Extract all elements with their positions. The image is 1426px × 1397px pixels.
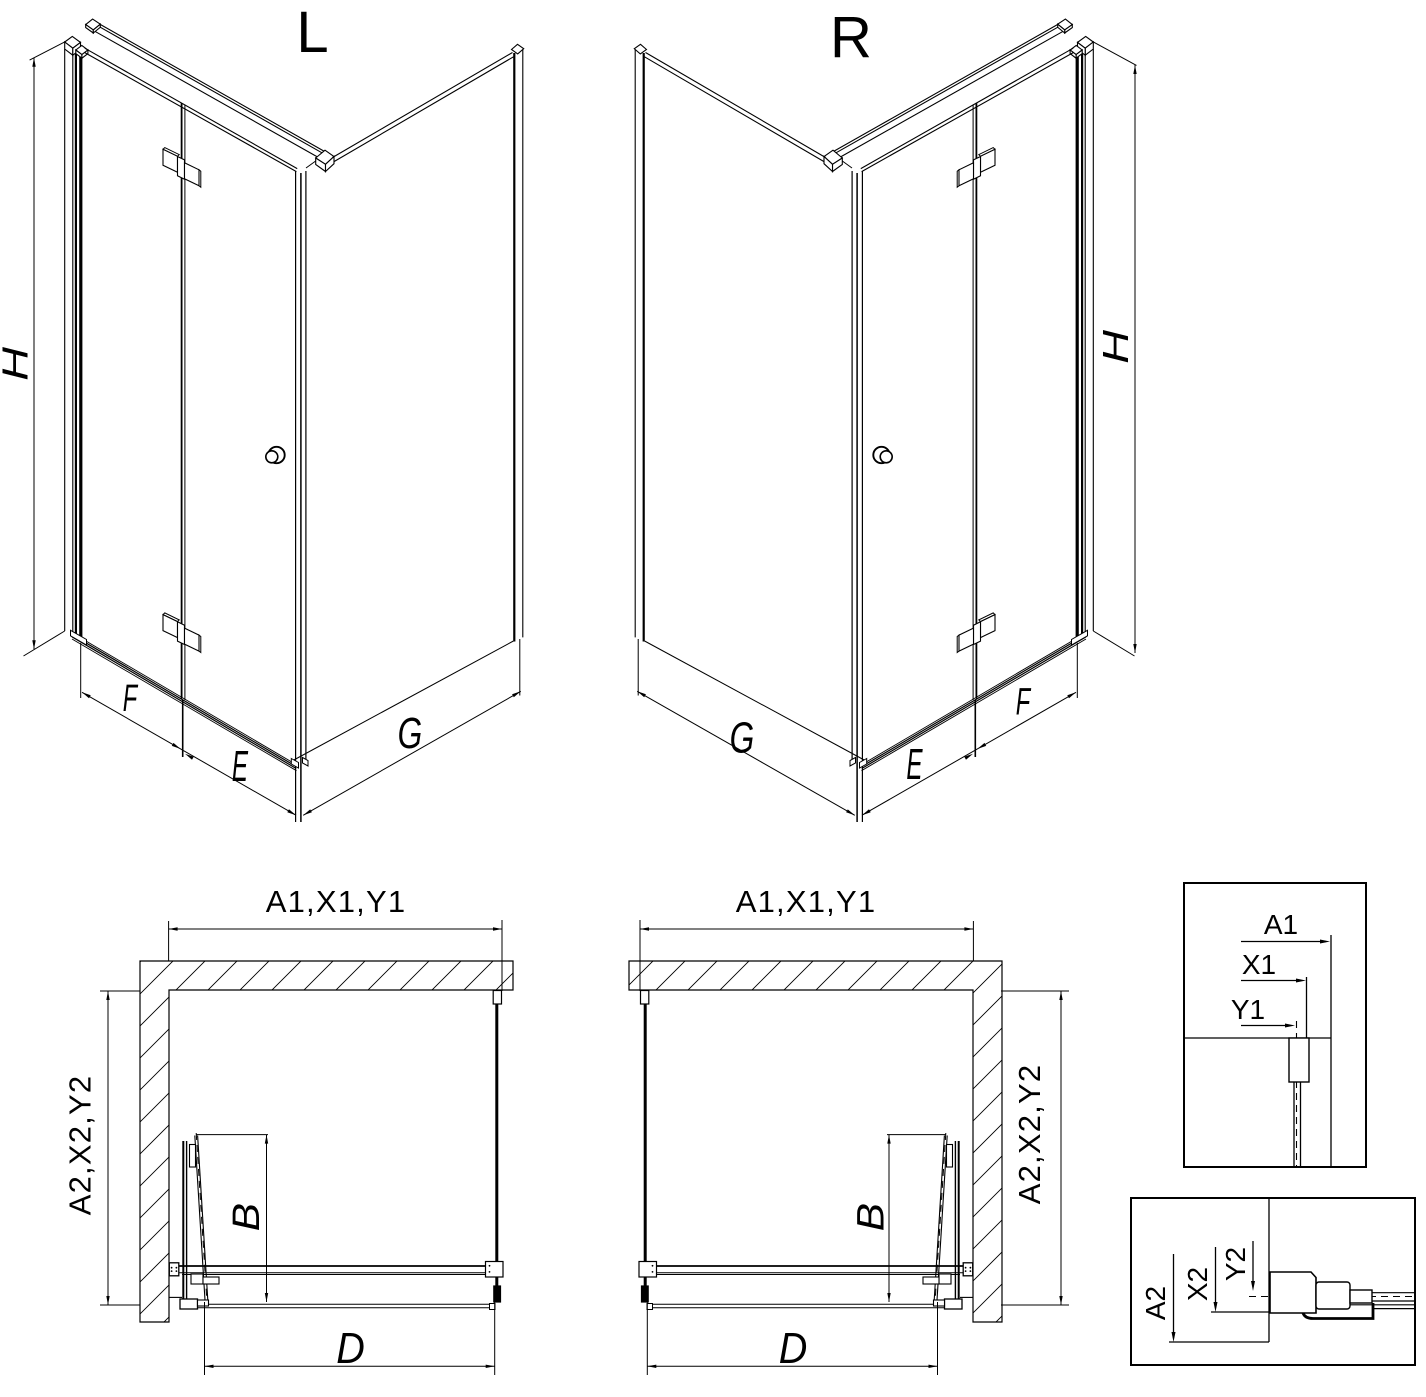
svg-text:H: H (1095, 329, 1136, 364)
svg-text:A2,X2,Y2: A2,X2,Y2 (1012, 1064, 1047, 1205)
svg-text:Y2: Y2 (1220, 1247, 1251, 1281)
svg-text:L: L (296, 0, 328, 65)
svg-text:R: R (830, 5, 872, 70)
svg-text:F: F (123, 676, 139, 719)
svg-text:D: D (779, 1323, 808, 1372)
svg-text:A1,X1,Y1: A1,X1,Y1 (266, 884, 407, 919)
svg-text:H: H (0, 346, 35, 381)
svg-text:B: B (849, 1203, 892, 1231)
svg-text:A2: A2 (1140, 1286, 1171, 1320)
svg-text:E: E (906, 739, 922, 789)
svg-text:X1: X1 (1242, 949, 1276, 980)
svg-text:G: G (730, 713, 755, 762)
svg-text:B: B (224, 1203, 267, 1231)
svg-text:X2: X2 (1182, 1267, 1213, 1301)
svg-text:A1: A1 (1264, 909, 1298, 940)
svg-text:F: F (1016, 680, 1032, 723)
svg-text:D: D (336, 1323, 365, 1372)
svg-text:E: E (232, 741, 248, 791)
svg-text:Y1: Y1 (1231, 994, 1265, 1025)
svg-text:G: G (398, 709, 423, 758)
svg-text:A1,X1,Y1: A1,X1,Y1 (736, 884, 877, 919)
svg-text:A2,X2,Y2: A2,X2,Y2 (63, 1075, 98, 1216)
